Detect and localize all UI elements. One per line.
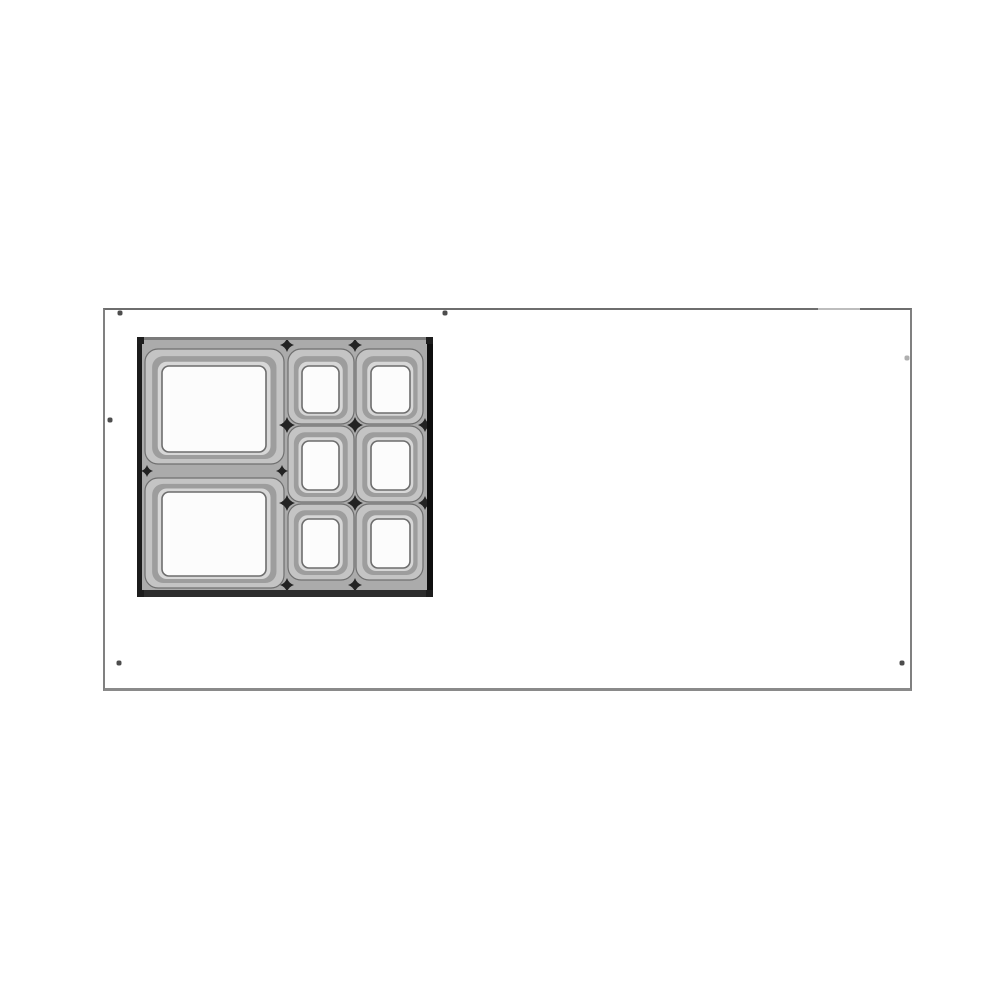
mount-hole — [118, 311, 123, 316]
border-fade-artifact — [818, 307, 860, 311]
pan-insert-drawing — [137, 337, 433, 597]
insert-corner — [426, 590, 433, 597]
pan-well-small-right-3 — [371, 519, 410, 568]
pan-well-small-mid-1 — [302, 366, 339, 413]
insert-corner — [137, 337, 144, 344]
mount-hole — [108, 418, 113, 423]
pan-well-small-right-2 — [371, 441, 410, 490]
mount-hole — [117, 661, 122, 666]
mount-hole — [905, 356, 910, 361]
insert-edge-bottom — [137, 590, 433, 597]
pan-well-small-mid-3 — [302, 519, 339, 568]
insert-corner — [137, 590, 144, 597]
drawing-canvas — [0, 0, 1000, 1000]
pan-well-large-bottom — [162, 492, 266, 576]
pan-well-small-mid-2 — [302, 441, 339, 490]
pan-well-large-top — [162, 366, 266, 452]
mount-hole — [900, 661, 905, 666]
mount-hole — [443, 311, 448, 316]
insert-corner — [426, 337, 433, 344]
insert-edge-left — [137, 337, 142, 597]
insert-edge-top — [137, 337, 433, 340]
pan-well-small-right-1 — [371, 366, 410, 413]
insert-edge-right — [427, 337, 433, 597]
